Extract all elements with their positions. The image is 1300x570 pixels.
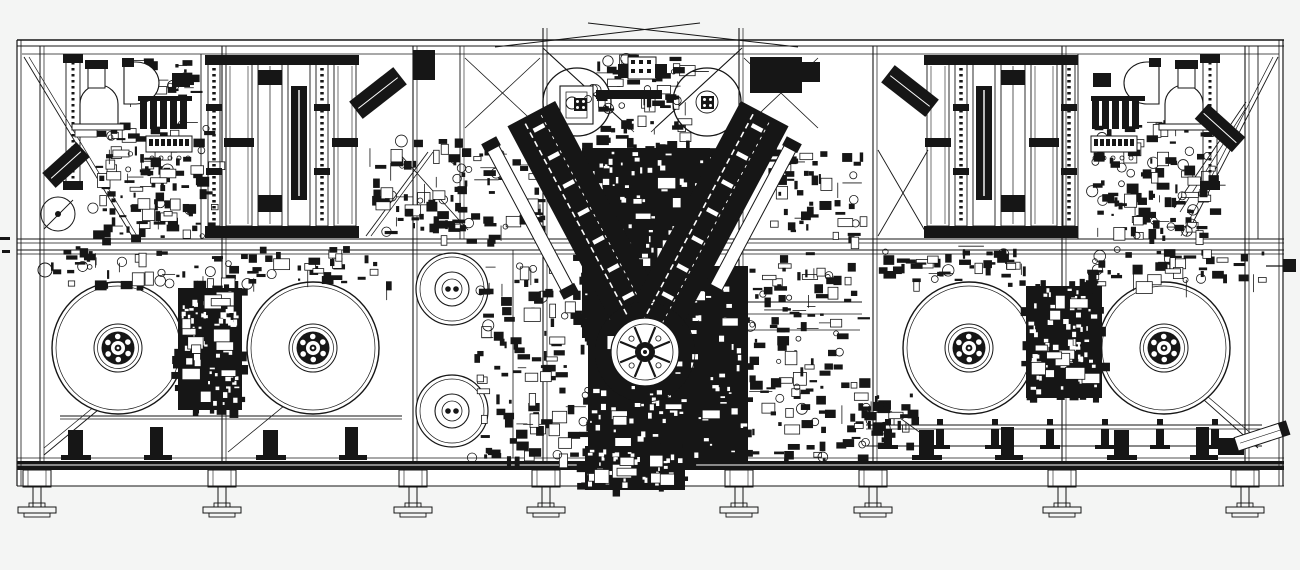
reel-2 [247,282,379,414]
cluster-under-center-block [577,440,692,497]
reel-1 [52,282,184,414]
reel-4 [1098,282,1230,414]
material-roll-2 [416,375,488,447]
cad-screenshot [0,0,1300,570]
machine-cad-drawing [0,0,1300,570]
cluster-left-reel-gap [171,281,248,418]
cluster-right-reel-gap [1021,279,1110,403]
material-roll-1 [416,253,488,325]
reel-3 [903,282,1035,414]
